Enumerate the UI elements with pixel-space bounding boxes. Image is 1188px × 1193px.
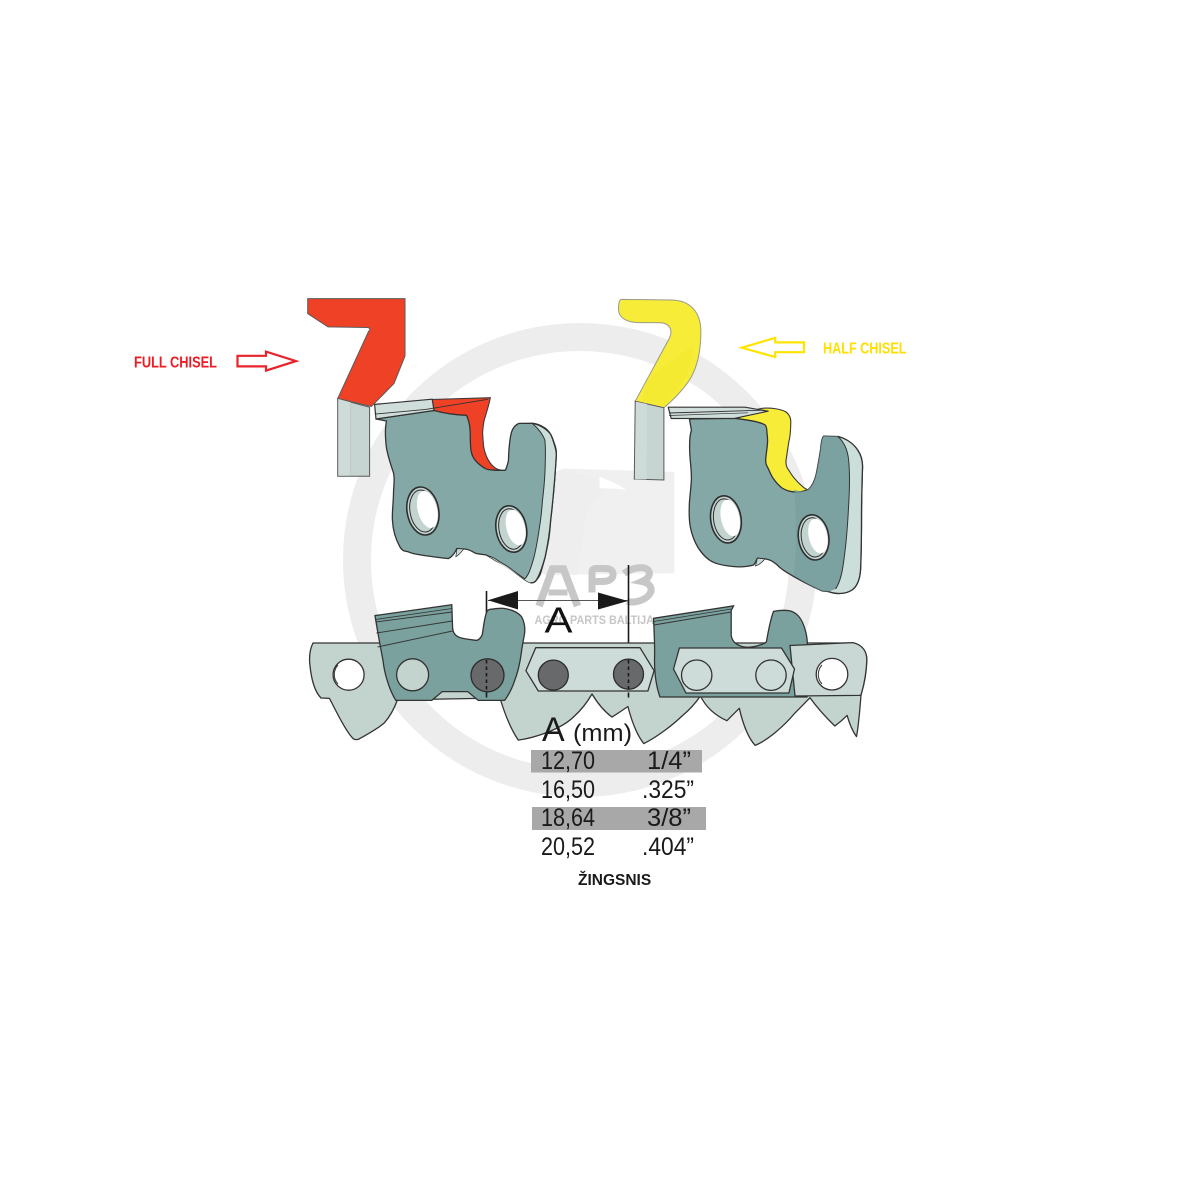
svg-text:18,64: 18,64 bbox=[541, 804, 595, 832]
svg-text:ŽINGSNIS: ŽINGSNIS bbox=[578, 871, 651, 889]
svg-text:16,50: 16,50 bbox=[541, 776, 595, 804]
svg-text:.404”: .404” bbox=[642, 833, 694, 861]
svg-text:HALF CHISEL: HALF CHISEL bbox=[823, 341, 907, 358]
svg-text:3/8”: 3/8” bbox=[647, 804, 691, 832]
svg-text:20,52: 20,52 bbox=[541, 833, 595, 861]
svg-text:.325”: .325” bbox=[642, 776, 694, 804]
svg-text:1/4”: 1/4” bbox=[647, 747, 691, 775]
svg-text:FULL CHISEL: FULL CHISEL bbox=[134, 355, 217, 372]
svg-text:(mm): (mm) bbox=[573, 720, 632, 747]
svg-text:A: A bbox=[545, 600, 573, 641]
svg-text:A: A bbox=[542, 711, 565, 749]
svg-text:12,70: 12,70 bbox=[541, 747, 595, 775]
